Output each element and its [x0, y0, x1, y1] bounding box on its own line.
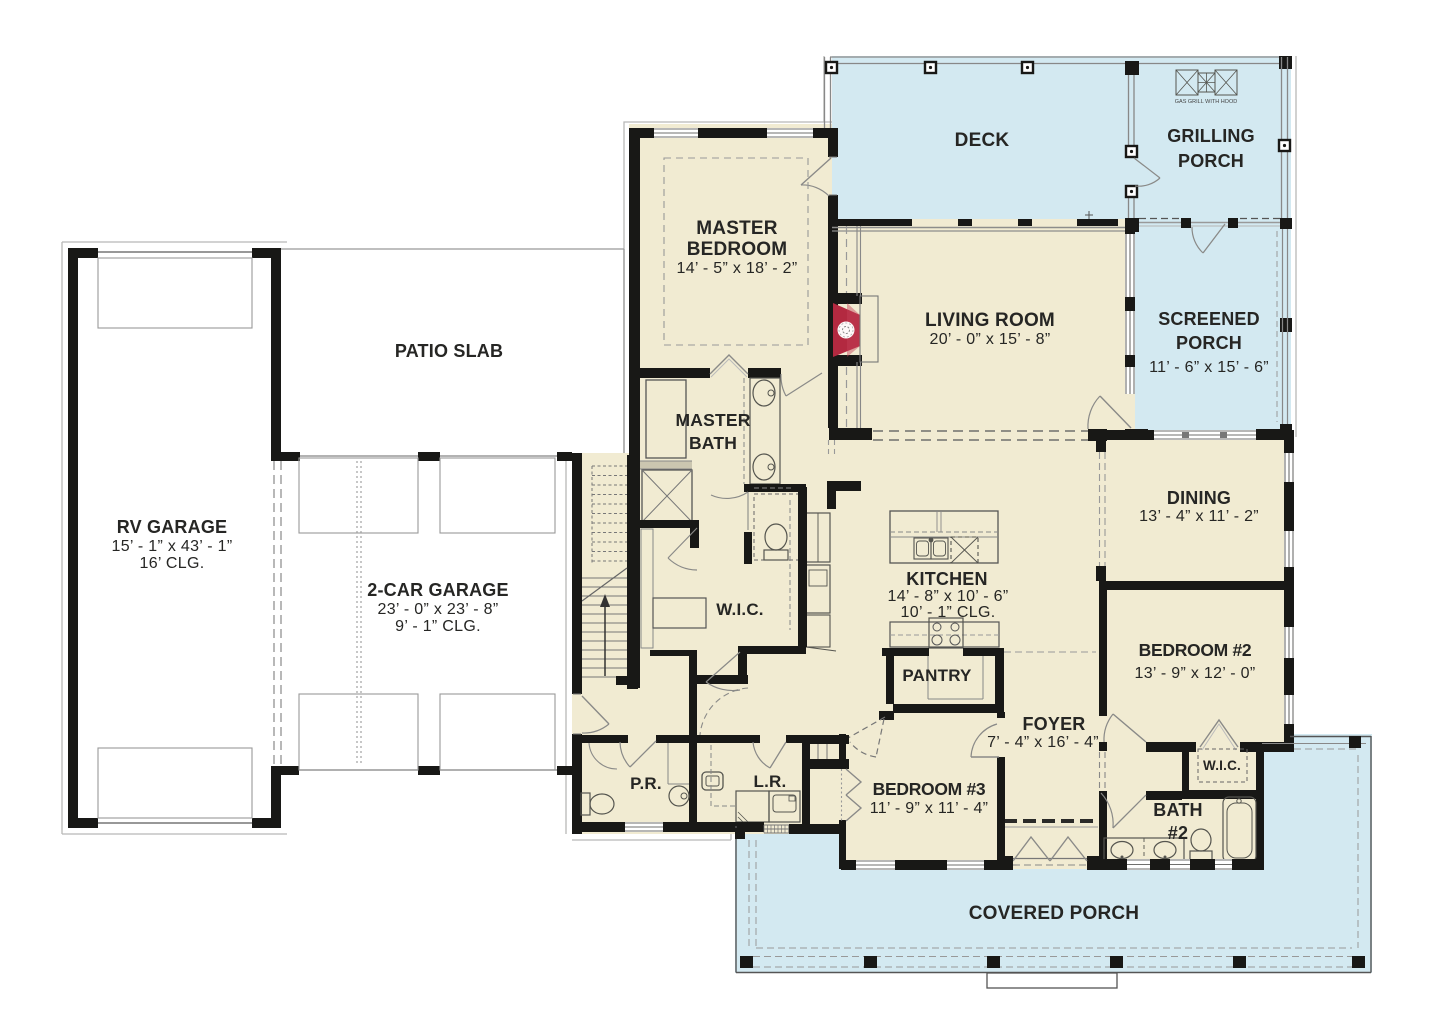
svg-text:BEDROOM #3: BEDROOM #3 — [873, 779, 986, 799]
svg-text:KITCHEN: KITCHEN — [906, 569, 987, 589]
svg-text:P.R.: P.R. — [630, 774, 662, 793]
svg-text:COVERED PORCH: COVERED PORCH — [969, 903, 1139, 924]
svg-text:GAS GRILL WITH HOOD: GAS GRILL WITH HOOD — [1175, 99, 1237, 105]
svg-text:20’ - 0” x 15’ - 8”: 20’ - 0” x 15’ - 8” — [930, 331, 1051, 348]
svg-text:PANTRY: PANTRY — [902, 666, 972, 685]
svg-text:LIVING ROOM: LIVING ROOM — [925, 310, 1055, 331]
svg-text:14’ - 8” x 10’ - 6”: 14’ - 8” x 10’ - 6” — [888, 588, 1009, 605]
svg-text:13’ - 4” x 11’ - 2”: 13’ - 4” x 11’ - 2” — [1139, 508, 1259, 525]
svg-text:DECK: DECK — [955, 130, 1010, 151]
svg-text:14’ - 5” x 18’ - 2”: 14’ - 5” x 18’ - 2” — [677, 260, 798, 277]
svg-text:7’ - 4” x 16’ - 4”: 7’ - 4” x 16’ - 4” — [987, 734, 1099, 751]
svg-text:16’ CLG.: 16’ CLG. — [140, 555, 205, 572]
svg-text:GRILLING: GRILLING — [1167, 126, 1255, 146]
svg-text:11’ - 6” x 15’ - 6”: 11’ - 6” x 15’ - 6” — [1149, 359, 1269, 376]
svg-text:BATH: BATH — [1153, 800, 1202, 820]
svg-text:BEDROOM: BEDROOM — [687, 239, 788, 260]
svg-text:BEDROOM #2: BEDROOM #2 — [1139, 640, 1252, 660]
svg-text:23’ - 0” x 23’ - 8”: 23’ - 0” x 23’ - 8” — [378, 601, 499, 618]
svg-text:PATIO SLAB: PATIO SLAB — [395, 341, 503, 361]
svg-text:PORCH: PORCH — [1178, 151, 1244, 171]
svg-text:W.I.C.: W.I.C. — [716, 600, 763, 619]
svg-text:13’ - 9” x 12’ - 0”: 13’ - 9” x 12’ - 0” — [1135, 665, 1256, 682]
svg-text:MASTER: MASTER — [675, 410, 750, 430]
svg-text:15’ - 1” x 43’ - 1”: 15’ - 1” x 43’ - 1” — [112, 538, 233, 555]
svg-text:PORCH: PORCH — [1176, 333, 1242, 353]
svg-text:11’ - 9” x 11’ - 4”: 11’ - 9” x 11’ - 4” — [870, 800, 989, 817]
svg-text:FOYER: FOYER — [1022, 714, 1085, 734]
svg-text:RV GARAGE: RV GARAGE — [117, 517, 228, 537]
svg-text:2-CAR GARAGE: 2-CAR GARAGE — [367, 580, 508, 600]
svg-text:DINING: DINING — [1167, 488, 1231, 508]
svg-text:#2: #2 — [1168, 823, 1188, 843]
svg-text:W.I.C.: W.I.C. — [1203, 758, 1241, 773]
svg-text:MASTER: MASTER — [696, 218, 778, 239]
svg-text:9’ - 1” CLG.: 9’ - 1” CLG. — [395, 618, 481, 635]
svg-text:SCREENED: SCREENED — [1158, 309, 1260, 329]
svg-text:BATH: BATH — [689, 433, 737, 453]
svg-text:L.R.: L.R. — [754, 772, 787, 791]
